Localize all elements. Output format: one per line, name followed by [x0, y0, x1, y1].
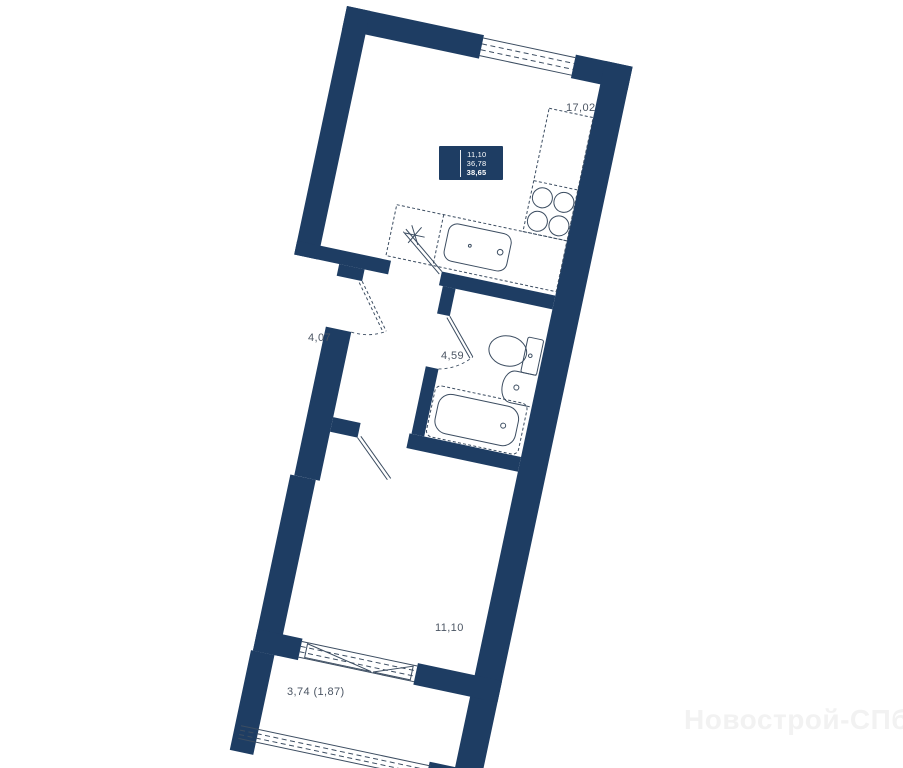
kitchen-sink-icon [442, 222, 513, 272]
balcony-door-window [299, 642, 418, 682]
wall-segment [294, 327, 351, 481]
room-label-hallway: 4,07 [308, 332, 331, 344]
toilet-icon [485, 329, 543, 375]
walls [189, 6, 633, 768]
living-area-value: 11,10 [467, 150, 486, 159]
wall-segment [230, 650, 275, 755]
window-glazing [480, 38, 576, 75]
watermark-text: Новострой-СПб [684, 704, 903, 736]
wall-segment [253, 474, 316, 655]
floor-plan-drawing [0, 0, 903, 768]
wall-segment [411, 366, 438, 436]
room-label-bedroom: 11,10 [435, 622, 464, 634]
bedroom-door-leaf [350, 436, 398, 481]
wall-segment [294, 6, 370, 259]
room-label-kitchen-living: 17,02 [566, 102, 596, 114]
counter-outline [386, 81, 593, 291]
wall-segment [439, 272, 555, 310]
wall-segment [437, 286, 456, 316]
washbasin-icon [499, 369, 536, 407]
entrance-door [349, 281, 396, 340]
total-area-value: 38,65 [467, 168, 487, 177]
floor-plan-canvas: 17,02 4,07 4,59 11,10 3,74 (1,87) 11,10 … [0, 0, 903, 768]
rotated-plan [189, 6, 633, 768]
room-label-balcony: 3,74 (1,87) [287, 686, 345, 698]
wall-segment [330, 417, 361, 437]
door-swing-arc [351, 324, 386, 339]
bathroom-door [436, 316, 480, 376]
window-opening-triangle [305, 644, 374, 672]
apartment-info-values: 11,10 36,78 38,65 [460, 150, 487, 177]
stove-icon [526, 186, 576, 238]
apartment-info-chip: 11,10 36,78 38,65 [439, 146, 503, 180]
area-value: 36,78 [467, 159, 487, 168]
balcony-glazing [238, 726, 430, 768]
room-label-bathroom: 4,59 [441, 350, 464, 362]
